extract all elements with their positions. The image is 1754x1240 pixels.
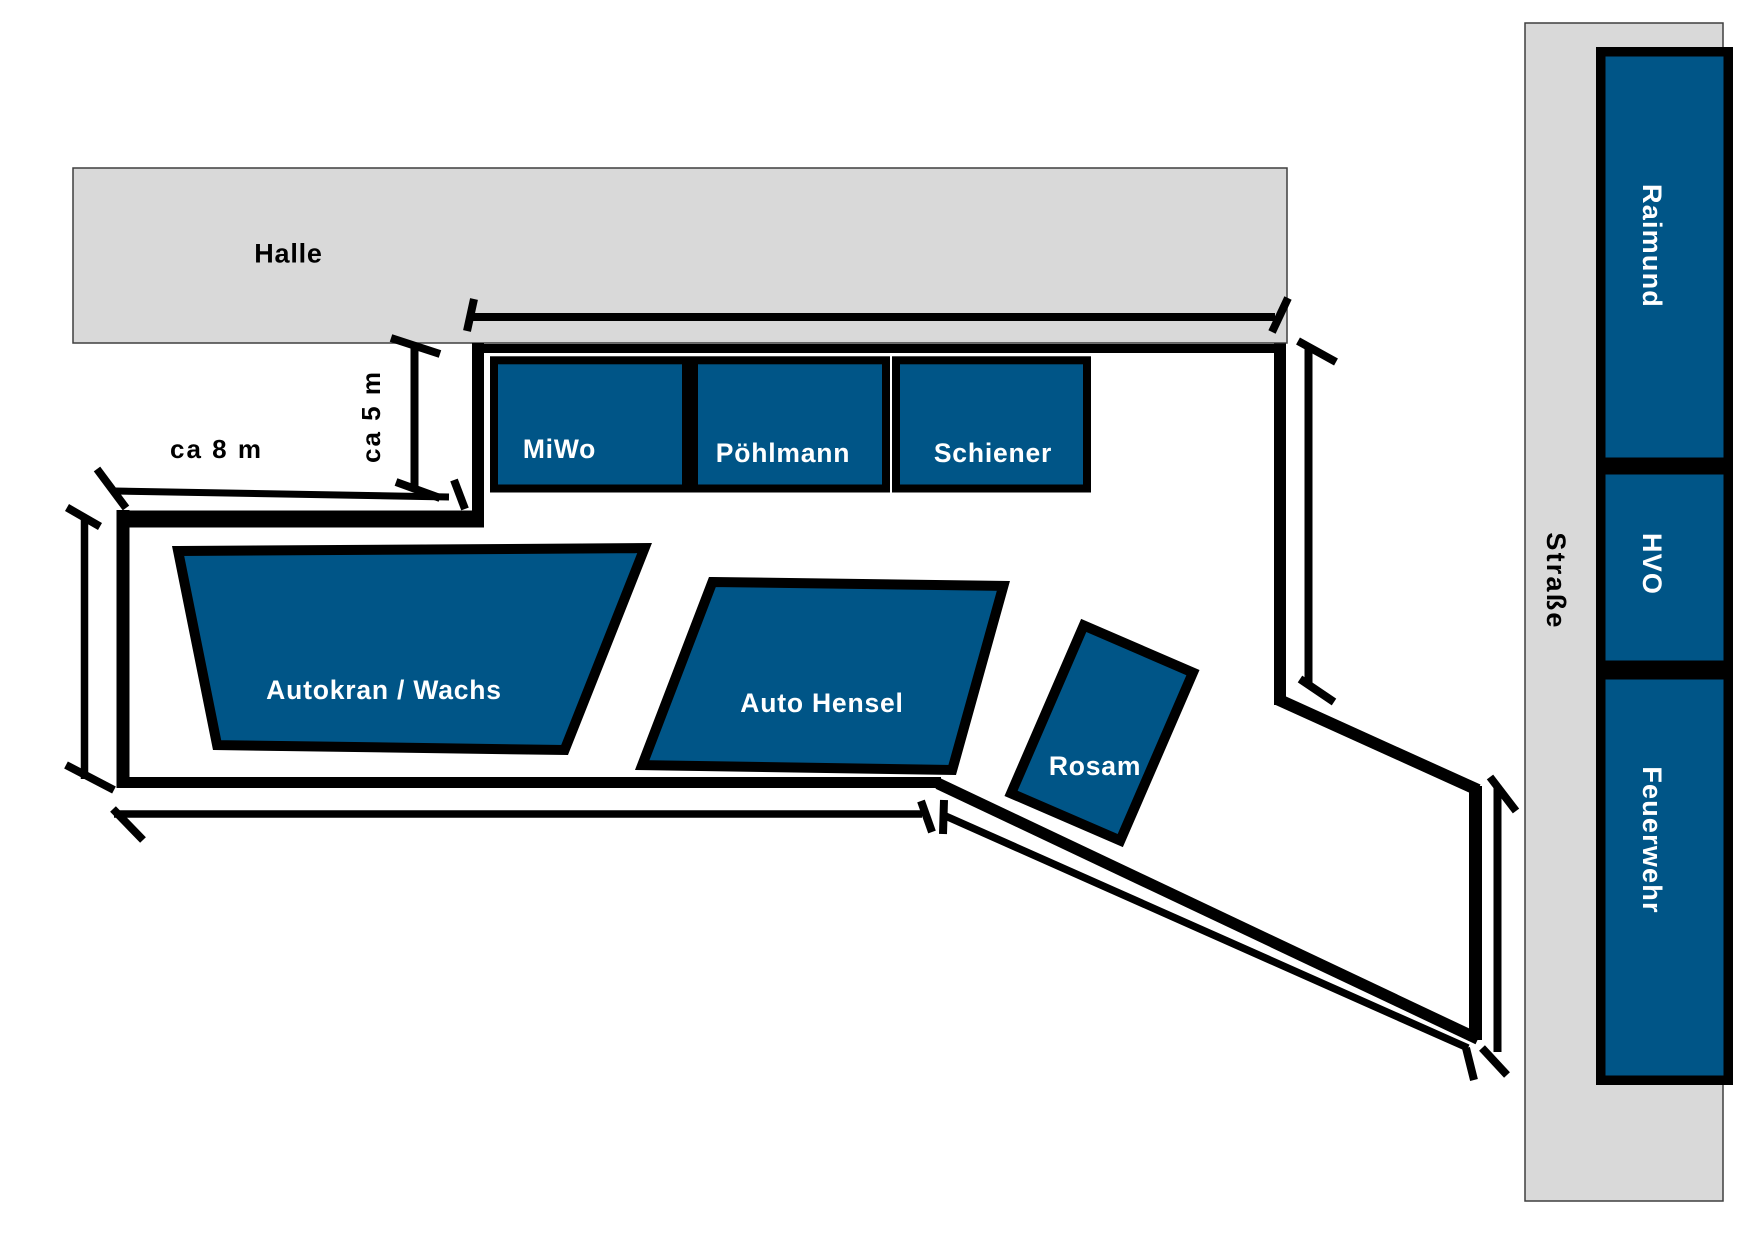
- svg-text:Pöhlmann: Pöhlmann: [716, 438, 851, 468]
- svg-text:MiWo: MiWo: [523, 434, 596, 464]
- svg-text:Rosam: Rosam: [1049, 751, 1141, 781]
- svg-text:Halle: Halle: [254, 239, 323, 269]
- svg-text:Autokran / Wachs: Autokran / Wachs: [266, 675, 502, 705]
- svg-text:Auto Hensel: Auto Hensel: [740, 688, 903, 718]
- svg-text:Schiener: Schiener: [934, 438, 1052, 468]
- svg-text:Raimund: Raimund: [1637, 184, 1667, 308]
- svg-text:ca 5 m: ca 5 m: [356, 370, 386, 463]
- svg-text:Straße: Straße: [1541, 532, 1571, 629]
- svg-text:HVO: HVO: [1637, 533, 1667, 595]
- svg-text:ca 8 m: ca 8 m: [170, 434, 263, 464]
- svg-text:Feuerwehr: Feuerwehr: [1637, 766, 1667, 913]
